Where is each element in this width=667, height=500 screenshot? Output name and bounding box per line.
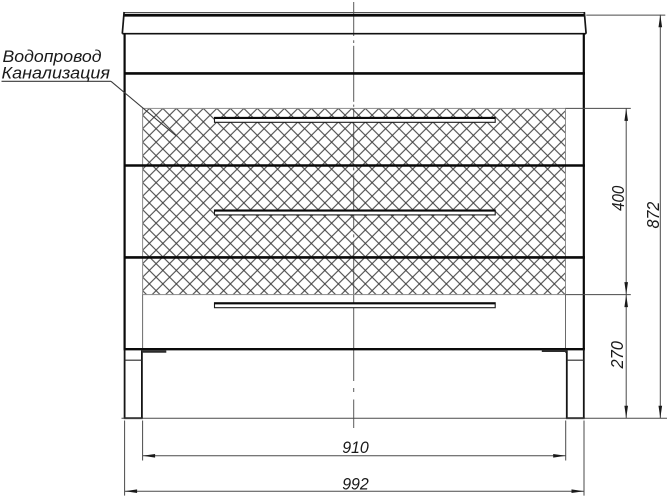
svg-text:Канализация: Канализация [2,65,111,83]
svg-text:Водопровод: Водопровод [3,48,102,66]
svg-text:270: 270 [607,341,627,370]
svg-text:910: 910 [342,438,369,457]
svg-text:872: 872 [643,201,663,228]
svg-text:992: 992 [342,475,369,494]
svg-text:400: 400 [608,185,628,210]
